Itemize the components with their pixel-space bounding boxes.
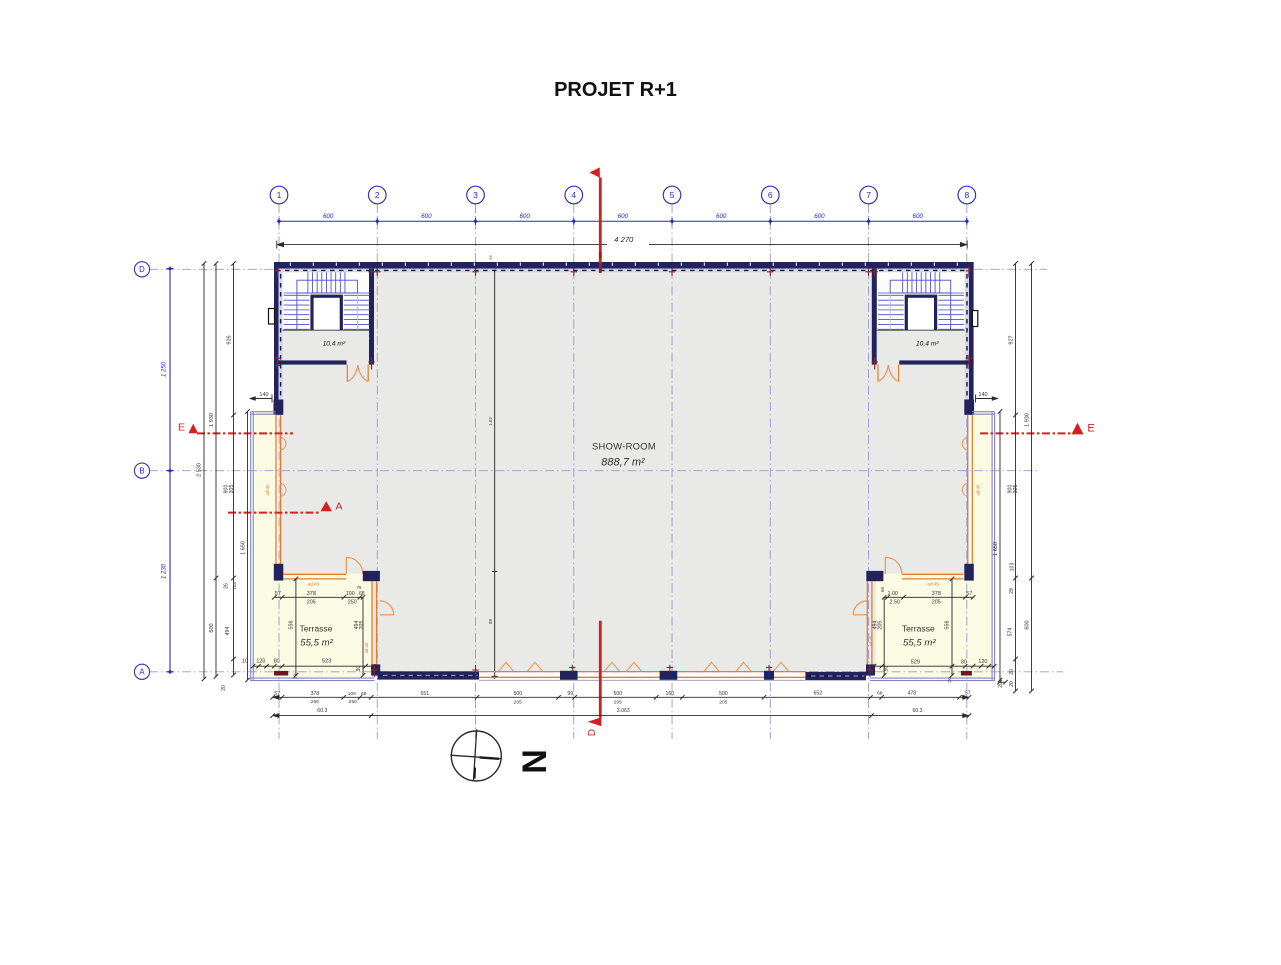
svg-text:600: 600	[814, 213, 825, 220]
svg-text:120: 120	[256, 658, 265, 664]
svg-text:250: 250	[348, 599, 357, 605]
svg-text:1.00: 1.00	[888, 591, 899, 597]
svg-text:140: 140	[978, 392, 987, 398]
svg-text:88: 88	[488, 619, 493, 625]
svg-text:26: 26	[224, 583, 230, 589]
svg-text:500: 500	[613, 691, 622, 697]
svg-text:90: 90	[356, 666, 362, 672]
svg-text:4: 4	[571, 190, 576, 200]
svg-text:B: B	[139, 467, 144, 476]
svg-text:ad:45: ad:45	[308, 582, 320, 587]
svg-text:205: 205	[614, 700, 622, 706]
svg-text:A: A	[139, 668, 145, 677]
svg-text:10: 10	[242, 658, 248, 664]
svg-text:2.50: 2.50	[890, 599, 901, 605]
svg-text:600: 600	[209, 623, 215, 632]
svg-text:80: 80	[961, 660, 967, 666]
svg-text:76: 76	[357, 585, 362, 590]
svg-text:556: 556	[945, 621, 951, 630]
svg-text:500: 500	[513, 691, 522, 697]
svg-text:5: 5	[670, 190, 675, 200]
svg-text:29: 29	[1009, 588, 1015, 594]
svg-text:8: 8	[964, 190, 969, 200]
svg-text:57: 57	[966, 591, 972, 597]
svg-text:E: E	[178, 422, 185, 434]
svg-text:10,4 m²: 10,4 m²	[916, 341, 939, 348]
svg-text:D: D	[139, 265, 145, 274]
svg-text:60.3: 60.3	[317, 708, 327, 714]
svg-text:20: 20	[1009, 669, 1015, 675]
svg-text:3.063: 3.063	[617, 708, 630, 714]
svg-text:N: N	[516, 749, 554, 774]
svg-text:55,5 m²: 55,5 m²	[903, 638, 936, 649]
svg-text:500: 500	[719, 691, 728, 697]
svg-text:1 930: 1 930	[209, 413, 215, 427]
svg-text:378: 378	[932, 591, 941, 597]
svg-text:PROJET R+1: PROJET R+1	[554, 79, 677, 101]
svg-text:SHOW-ROOM: SHOW-ROOM	[592, 441, 656, 452]
svg-text:55,5 m²: 55,5 m²	[300, 638, 333, 649]
svg-text:926: 926	[227, 335, 233, 344]
svg-text:600: 600	[421, 213, 432, 220]
svg-text:120: 120	[978, 659, 987, 665]
svg-text:ad:45: ad:45	[869, 635, 874, 647]
svg-text:250: 250	[311, 699, 319, 705]
svg-text:378: 378	[307, 591, 316, 597]
svg-text:600: 600	[323, 213, 334, 220]
svg-text:57: 57	[275, 591, 281, 597]
svg-text:E: E	[1087, 423, 1094, 435]
svg-text:ad:45: ad:45	[265, 484, 270, 496]
svg-text:60.3: 60.3	[912, 708, 922, 714]
svg-text:20: 20	[221, 685, 227, 691]
svg-text:1: 1	[277, 190, 282, 200]
svg-text:Terrasse: Terrasse	[902, 624, 935, 634]
svg-text:205: 205	[932, 599, 941, 605]
svg-text:68: 68	[361, 691, 367, 697]
svg-text:1 650: 1 650	[993, 542, 999, 556]
svg-text:556: 556	[288, 621, 294, 630]
svg-text:205: 205	[229, 485, 235, 494]
svg-text:160: 160	[665, 691, 674, 697]
svg-text:478: 478	[907, 691, 916, 697]
svg-text:ad:45: ad:45	[364, 642, 369, 654]
svg-text:80: 80	[274, 658, 280, 664]
svg-text:100: 100	[348, 691, 356, 697]
svg-text:600: 600	[519, 213, 530, 220]
svg-text:927: 927	[1009, 335, 1015, 344]
svg-text:7: 7	[866, 190, 871, 200]
svg-text:205: 205	[514, 700, 522, 706]
svg-text:888,7 m²: 888,7 m²	[601, 457, 645, 469]
svg-text:100: 100	[346, 591, 355, 597]
svg-text:574: 574	[1008, 628, 1014, 637]
svg-text:Terrasse: Terrasse	[300, 624, 333, 634]
svg-text:10,4 m²: 10,4 m²	[323, 341, 346, 348]
svg-text:20: 20	[947, 677, 952, 683]
svg-text:494: 494	[225, 627, 231, 636]
svg-text:103: 103	[232, 582, 237, 590]
svg-text:A: A	[335, 501, 342, 513]
svg-text:57: 57	[965, 691, 971, 697]
svg-text:651: 651	[420, 691, 429, 697]
svg-text:96: 96	[488, 255, 493, 260]
svg-text:1 650: 1 650	[241, 541, 247, 555]
svg-text:1 230: 1 230	[162, 563, 168, 579]
svg-text:1 930: 1 930	[1025, 413, 1031, 427]
svg-text:90: 90	[883, 666, 889, 672]
svg-text:600: 600	[618, 213, 629, 220]
svg-text:103: 103	[1010, 563, 1016, 572]
svg-text:2 530: 2 530	[197, 463, 203, 477]
svg-text:205: 205	[878, 621, 884, 630]
svg-text:652: 652	[813, 690, 822, 696]
svg-text:68: 68	[880, 587, 885, 592]
svg-text:D: D	[587, 729, 598, 736]
svg-text:205: 205	[719, 700, 727, 706]
svg-text:1.02: 1.02	[488, 417, 493, 426]
svg-text:20: 20	[293, 674, 298, 680]
svg-text:57: 57	[274, 691, 280, 697]
svg-text:68: 68	[877, 691, 883, 697]
svg-text:529: 529	[911, 659, 920, 665]
svg-text:205: 205	[359, 621, 365, 630]
svg-text:1 250: 1 250	[162, 361, 168, 377]
svg-text:68: 68	[359, 591, 365, 597]
svg-text:250: 250	[349, 699, 357, 705]
svg-text:140: 140	[259, 392, 268, 398]
svg-text:378: 378	[310, 691, 319, 697]
svg-text:205: 205	[307, 599, 316, 605]
svg-text:600: 600	[1025, 620, 1031, 629]
svg-text:20: 20	[1009, 681, 1015, 687]
svg-text:523: 523	[322, 658, 331, 664]
svg-text:6: 6	[768, 190, 773, 200]
svg-text:600: 600	[716, 213, 727, 220]
svg-text:4 270: 4 270	[614, 235, 634, 244]
svg-text:600: 600	[913, 213, 924, 220]
svg-text:2: 2	[375, 190, 380, 200]
svg-text:ad:45: ad:45	[975, 484, 980, 496]
svg-text:99: 99	[567, 691, 573, 697]
svg-text:3: 3	[473, 190, 478, 200]
svg-text:ad:45: ad:45	[927, 582, 939, 587]
svg-text:205: 205	[1013, 485, 1019, 494]
